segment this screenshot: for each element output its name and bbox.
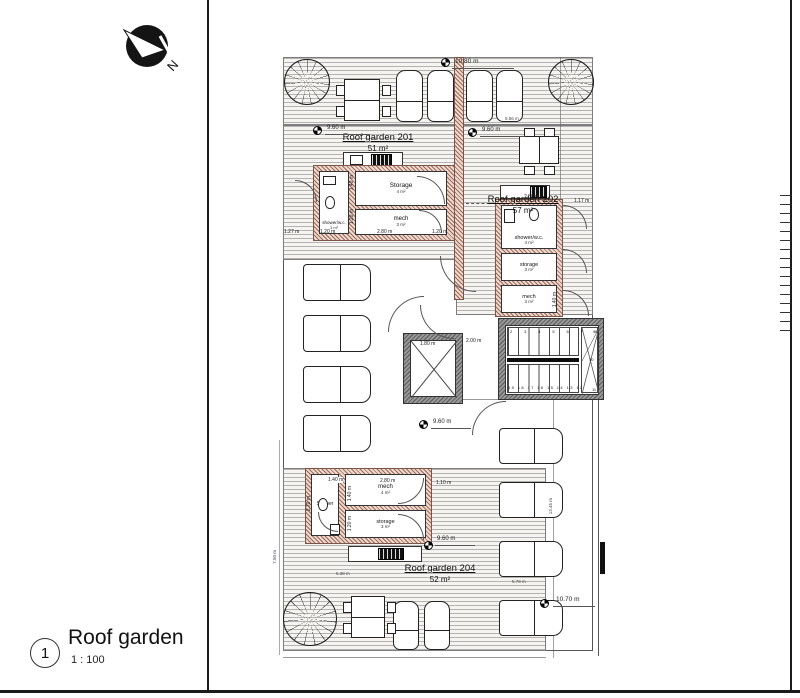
sun-lounger	[396, 70, 423, 122]
dining-table	[351, 596, 385, 638]
stair-number-9: 9	[593, 329, 595, 334]
sink	[350, 155, 363, 165]
sheet-border-right	[790, 0, 792, 693]
dim-120d: 1.20 m	[347, 516, 353, 531]
plan-scale: 1 : 100	[71, 654, 105, 666]
dim-140a: 1.40 m	[349, 175, 355, 190]
sun-lounger	[303, 415, 371, 452]
room-area: 3 m²	[525, 300, 534, 305]
dim-120a: 1.20 m	[320, 229, 335, 235]
palm-plant-bottom-left	[283, 592, 337, 646]
dim-110: 1.10 m	[436, 480, 451, 486]
sheet-edge-ticks	[780, 195, 791, 331]
level-marker	[419, 420, 428, 429]
dim-578: 5.78 m	[512, 579, 526, 584]
sun-lounger	[393, 601, 419, 650]
roof-garden-202-area: 57 m²	[458, 206, 588, 215]
stair-handrail	[507, 358, 579, 362]
dim-140c: 1.40 m	[328, 477, 343, 483]
dim-stair-width: 2.00 m	[466, 338, 481, 344]
level-marker	[540, 599, 549, 608]
sun-lounger	[303, 264, 371, 301]
sun-lounger	[496, 70, 523, 122]
sun-lounger	[499, 428, 563, 464]
sun-lounger	[424, 601, 450, 650]
viewport-number-badge: 1	[30, 638, 60, 668]
dim-top-width: 10.80 m	[455, 58, 479, 65]
dim-g204: 9.60 m	[437, 536, 455, 542]
sun-lounger	[303, 366, 371, 403]
dim-mid: 9.60 m	[433, 419, 451, 425]
edge-wall-bar	[600, 542, 605, 574]
sun-lounger	[466, 70, 493, 122]
room-mech-202: mech 3 m²	[501, 285, 557, 313]
dim-556: 5.56 m	[505, 116, 519, 121]
room-storage-202: storage 3 m²	[501, 253, 557, 281]
room-area: 4 m²	[397, 190, 406, 195]
roof-garden-204-area: 52 m²	[380, 575, 500, 584]
room-area: 3 m²	[525, 268, 534, 273]
stair-numbers-top: 2 3 4 5 6 7 8	[510, 329, 602, 334]
dim-bottom-width: 10.70 m	[556, 596, 580, 603]
sink	[323, 176, 336, 185]
dining-table	[344, 79, 380, 121]
room-area: 3 m²	[397, 223, 406, 228]
stair-number-11: 11	[592, 387, 596, 392]
north-arrow-icon: N	[120, 20, 184, 80]
stair-core: 2 3 4 5 6 7 8 19 18 17 16 15 14 13 12 9 …	[498, 318, 604, 400]
dim-117: 1.17 m	[574, 198, 589, 204]
toilet	[325, 196, 335, 209]
level-marker	[441, 58, 450, 67]
dining-table	[519, 136, 559, 164]
sun-lounger	[427, 70, 454, 122]
dim-underline	[452, 68, 514, 69]
dim-underline	[553, 606, 595, 607]
dim-280a: 2.80 m	[377, 229, 392, 235]
dim-270: 2.70 m	[306, 496, 312, 511]
left-dim-line	[279, 440, 280, 655]
viewport-number: 1	[41, 645, 49, 662]
dim-140b: 1.40 m	[552, 292, 558, 307]
palm-plant-top-left	[284, 59, 330, 105]
dim-120b: 1.20 m	[432, 229, 447, 235]
sheet-border-left-panel	[207, 0, 209, 693]
plan-title: Roof garden	[68, 626, 184, 650]
dim-g201: 9.60 m	[327, 125, 345, 131]
room-area: 3 m²	[381, 525, 390, 530]
dim-280c: 2.80 m	[380, 478, 395, 484]
roof-garden-204-label: Roof garden 204	[380, 563, 500, 574]
stair-number-10: 10	[589, 357, 593, 362]
dim-elevator: 1.80 m	[420, 341, 435, 347]
dim-underline	[480, 136, 525, 137]
palm-plant-top-right	[548, 59, 594, 105]
toilet	[318, 498, 328, 511]
level-marker	[424, 541, 433, 550]
room-area: 4 m²	[525, 241, 534, 246]
roof-garden-202-label: Roof garden 202	[458, 194, 588, 205]
bottom-dim-line	[283, 657, 546, 658]
room-area: 4 m²	[381, 491, 390, 496]
dim-638: 6.38 m	[336, 571, 350, 576]
sun-lounger	[499, 482, 563, 518]
dim-127: 1.27 m	[284, 229, 299, 235]
roof-garden-201-area: 51 m²	[323, 144, 433, 153]
sun-lounger	[303, 315, 371, 352]
dim-underline	[325, 134, 370, 135]
level-marker	[468, 128, 477, 137]
elevator-cab	[410, 340, 456, 397]
dim-1345: 13.45 m	[548, 498, 553, 514]
grill-counter	[378, 548, 404, 560]
level-marker	[313, 126, 322, 135]
dim-120c: 1.20 m	[349, 209, 355, 224]
elevator-shaft: 1.80 m	[403, 333, 463, 404]
dim-g202: 9.60 m	[482, 127, 500, 133]
sun-lounger	[499, 541, 563, 577]
dim-140d: 1.40 m	[347, 486, 353, 501]
dim-underline	[435, 545, 475, 546]
dim-750: 7.50 m	[272, 550, 277, 564]
sheet-border-bottom	[0, 690, 800, 693]
edge-line-right	[598, 400, 599, 656]
stair-numbers-bottom: 19 18 17 16 15 14 13 12	[508, 385, 584, 390]
dim-underline	[431, 428, 471, 429]
drawing-sheet: N	[0, 0, 800, 698]
dim-280b: 2.80 m	[524, 194, 539, 200]
